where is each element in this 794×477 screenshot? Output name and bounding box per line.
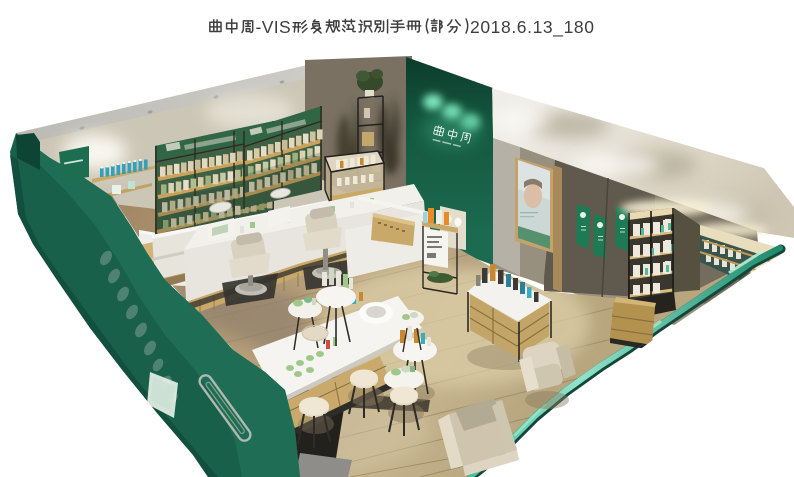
svg-text:2018.6.13_180: 2018.6.13_180 (470, 17, 595, 38)
svg-text:-VIS: -VIS (256, 17, 292, 37)
